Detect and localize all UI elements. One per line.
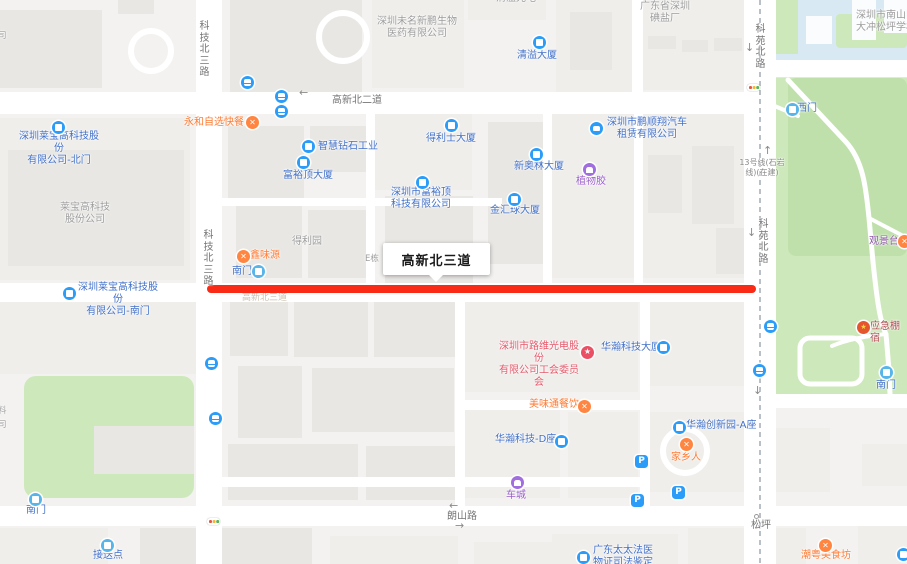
map-label: 新奥林大厦 (514, 161, 564, 173)
map-label: 植物胶 (576, 176, 606, 188)
gate-icon[interactable] (786, 103, 799, 116)
map-label: 得利士大厦 (426, 133, 476, 145)
shop-icon[interactable] (583, 163, 596, 176)
map-label: 得利园 (292, 236, 322, 248)
map-label: 智慧钻石工业 (318, 141, 378, 153)
traffic-light-icon (747, 84, 760, 91)
building-block (0, 10, 102, 88)
map-label: 科苑北路 (754, 24, 767, 70)
gate-icon[interactable] (252, 265, 265, 278)
building-block (474, 542, 562, 564)
emergency-icon[interactable] (857, 321, 870, 334)
map-label: 华瀚科技大厦 (601, 342, 661, 354)
map-label: 朗山路 (447, 511, 477, 523)
shop-icon[interactable] (511, 476, 524, 489)
map-label: 深圳莱宝高科技股份 有限公司-南门 (75, 282, 161, 318)
parking-icon[interactable] (635, 455, 648, 468)
building-icon[interactable] (416, 176, 429, 189)
map-label: 观景台 (869, 236, 899, 248)
map-label: 家乡人 (671, 452, 701, 464)
map-label: 华瀚科技-D座 (495, 434, 556, 446)
map-label: 清溢光电 (496, 0, 536, 5)
building-icon[interactable] (555, 435, 568, 448)
map-label: 南门 (232, 266, 252, 278)
direction-arrow: ↓ (747, 227, 756, 238)
map-label: 司 (0, 420, 7, 430)
building-block (692, 146, 734, 224)
traffic-light-icon (207, 518, 220, 525)
road-segment (222, 198, 502, 206)
map-label: 车城 (506, 490, 526, 502)
map-label: 莱宝高科技 股份公司 (55, 202, 115, 226)
driveway-ring (316, 10, 370, 64)
map-label: 科技北三路 (202, 230, 215, 288)
school-building (806, 16, 832, 44)
road-segment (768, 60, 907, 77)
restaurant-icon[interactable] (246, 116, 259, 129)
building-block (372, 0, 464, 88)
restaurant-icon[interactable] (819, 539, 832, 552)
road-segment (543, 110, 552, 283)
building-block (570, 12, 612, 70)
map-label: 永和自选快餐 (184, 117, 244, 129)
building-block (238, 366, 302, 438)
building-icon[interactable] (508, 193, 521, 206)
driveway-ring (128, 28, 174, 74)
building-block (648, 155, 682, 213)
direction-arrow: ↓ (745, 42, 754, 53)
callout-road-name: 高新北三道 (401, 250, 471, 269)
map-label: 深圳未名新鹏生物 医药有限公司 (374, 16, 460, 40)
bus-icon[interactable] (209, 412, 222, 425)
map-label: 金汇球大厦 (490, 205, 540, 217)
building-block (772, 428, 830, 492)
map-label: 南门 (26, 505, 46, 517)
building-block (0, 528, 108, 564)
map-label: E栋 (365, 254, 379, 264)
building-block (228, 126, 304, 198)
map-label: 广东省深圳 碘盐厂 (634, 1, 696, 25)
restaurant-icon[interactable] (898, 235, 907, 248)
parking-icon[interactable] (672, 486, 685, 499)
highlighted-road[interactable] (207, 285, 756, 293)
building-icon[interactable] (302, 140, 315, 153)
direction-arrow: ↓ (753, 385, 762, 396)
map-label: 深圳市富裕顶 科技有限公司 (391, 187, 451, 211)
road-segment (744, 394, 907, 408)
map-label: 清溢大厦 (517, 50, 557, 62)
map-label: 料 (0, 406, 7, 416)
building-icon[interactable] (533, 36, 546, 49)
building-block (230, 302, 288, 356)
map-canvas[interactable]: 高新北三道 清溢光电深圳未名新鹏生物 医药有限公司广东省深圳 碘盐厂深圳市南山区… (0, 0, 907, 564)
building-block (94, 426, 194, 474)
building-block (330, 536, 458, 564)
building-icon[interactable] (297, 156, 310, 169)
map-label: 华瀚创新园-A座 (686, 420, 756, 432)
map-label: 美味通餐饮 (529, 399, 579, 411)
direction-arrow: ← (449, 500, 458, 511)
map-label: 深圳市南山区 大冲松坪学校 (851, 10, 907, 34)
building-icon[interactable] (897, 548, 907, 561)
bus-icon[interactable] (275, 90, 288, 103)
building-block (294, 300, 368, 357)
map-label: 松坪 (751, 520, 771, 532)
building-icon[interactable] (52, 121, 65, 134)
map-label: 应急棚宿 (870, 321, 907, 345)
building-block (228, 444, 358, 500)
map-label: 深圳市路维光电股份 有限公司工会委员会 (497, 341, 581, 389)
map-label: 深圳市鹏顺翔汽车 租赁有限公司 (604, 117, 690, 141)
building-icon[interactable] (445, 119, 458, 132)
map-label: 司 (0, 31, 7, 41)
bus-icon[interactable] (205, 357, 218, 370)
car-icon[interactable] (590, 122, 603, 135)
gate-icon[interactable] (29, 493, 42, 506)
gate-icon[interactable] (101, 539, 114, 552)
parking-icon[interactable] (631, 494, 644, 507)
direction-arrow: ← (299, 87, 308, 98)
building-block (714, 38, 742, 51)
building-icon[interactable] (530, 148, 543, 161)
map-label: 鑫味源 (250, 250, 280, 262)
bus-icon[interactable] (241, 76, 254, 89)
map-label: 西门 (797, 103, 817, 115)
driveway-ring (660, 426, 710, 476)
map-label: 南门 (876, 380, 896, 392)
building-block (648, 36, 676, 49)
restaurant-icon[interactable] (578, 400, 591, 413)
building-block (140, 528, 312, 564)
building-icon[interactable] (577, 551, 590, 564)
building-block (118, 0, 154, 14)
building-block (682, 40, 708, 52)
map-label: 科苑北路 (757, 219, 770, 265)
map-label: 高新北二道 (332, 95, 382, 107)
road-node (754, 514, 759, 519)
map-label: 深圳莱宝高科技股份 有限公司-北门 (16, 131, 102, 167)
bus-icon[interactable] (275, 105, 288, 118)
union-icon[interactable] (581, 346, 594, 359)
building-icon[interactable] (657, 341, 670, 354)
map-label: 广东太太法医 物证司法鉴定所 (590, 545, 656, 564)
building-icon[interactable] (673, 421, 686, 434)
map-label: 高新北三道 (242, 292, 287, 304)
building-block (862, 444, 907, 486)
road-highlight-callout[interactable]: 高新北三道 (383, 243, 490, 275)
building-block (312, 368, 454, 432)
map-label: 富裕顶大厦 (283, 170, 333, 182)
map-label: 科技北三路 (198, 21, 211, 79)
road-segment (220, 477, 644, 487)
direction-arrow: ↑ (763, 145, 772, 156)
restaurant-icon[interactable] (237, 250, 250, 263)
bus-icon[interactable] (753, 364, 766, 377)
gate-icon[interactable] (880, 366, 893, 379)
restaurant-icon[interactable] (680, 438, 693, 451)
building-block (366, 446, 456, 500)
bus-icon[interactable] (764, 320, 777, 333)
building-icon[interactable] (63, 287, 76, 300)
map-label: 13号线(石岩 线)(在建) (739, 158, 785, 178)
building-block (374, 300, 456, 357)
